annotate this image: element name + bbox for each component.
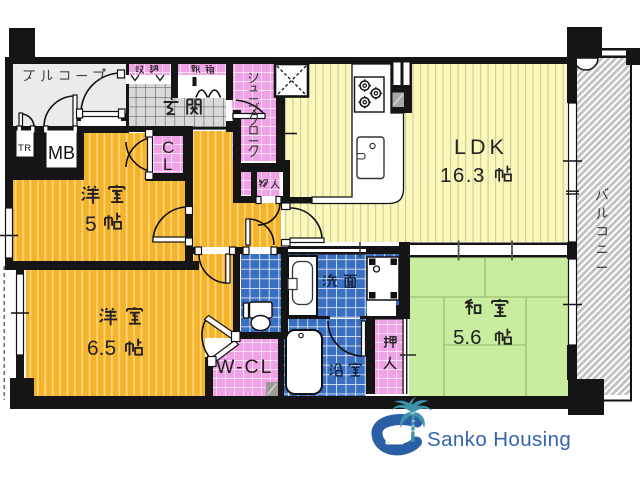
svg-text:L: L (163, 155, 172, 174)
svg-text:Sanko Housing: Sanko Housing (427, 428, 571, 451)
svg-text:LDK: LDK (454, 135, 508, 159)
svg-text:MB: MB (48, 143, 75, 163)
svg-text:W-CL: W-CL (216, 356, 273, 378)
svg-text:5.6: 5.6 (453, 326, 482, 349)
svg-text:16.3: 16.3 (440, 164, 486, 187)
svg-text:5: 5 (85, 213, 97, 236)
svg-text:6.5: 6.5 (87, 337, 116, 360)
svg-text:TR: TR (18, 143, 32, 154)
